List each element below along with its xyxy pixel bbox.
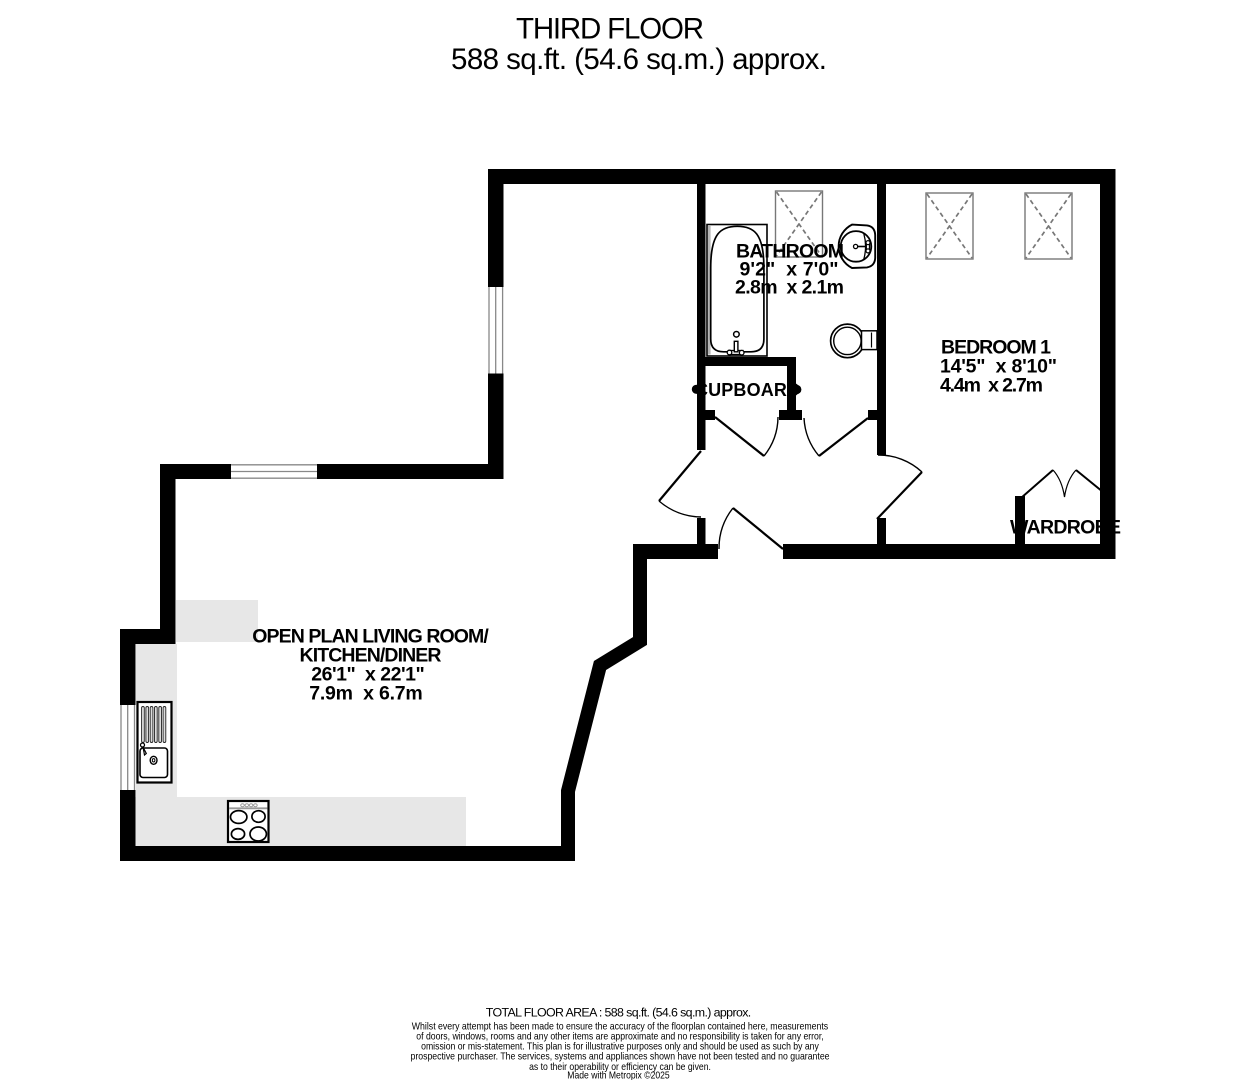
svg-text:2.8m x 2.1m: 2.8m x 2.1m [735,277,844,299]
svg-text:TOTAL FLOOR AREA : 588 sq.ft.: TOTAL FLOOR AREA : 588 sq.ft. (54.6 sq.m… [486,1006,752,1020]
svg-text:Made with Metropix ©2025: Made with Metropix ©2025 [567,1071,670,1080]
svg-text:4.4m x 2.7m: 4.4m x 2.7m [940,374,1043,396]
svg-text:588 sq.ft. (54.6 sq.m.) approx: 588 sq.ft. (54.6 sq.m.) approx. [451,43,827,76]
svg-text:7.9m x 6.7m: 7.9m x 6.7m [309,683,423,705]
svg-text:CUPBOARD: CUPBOARD [695,380,800,400]
svg-text:THIRD FLOOR: THIRD FLOOR [516,13,704,46]
svg-text:WARDROBE: WARDROBE [1010,517,1121,539]
